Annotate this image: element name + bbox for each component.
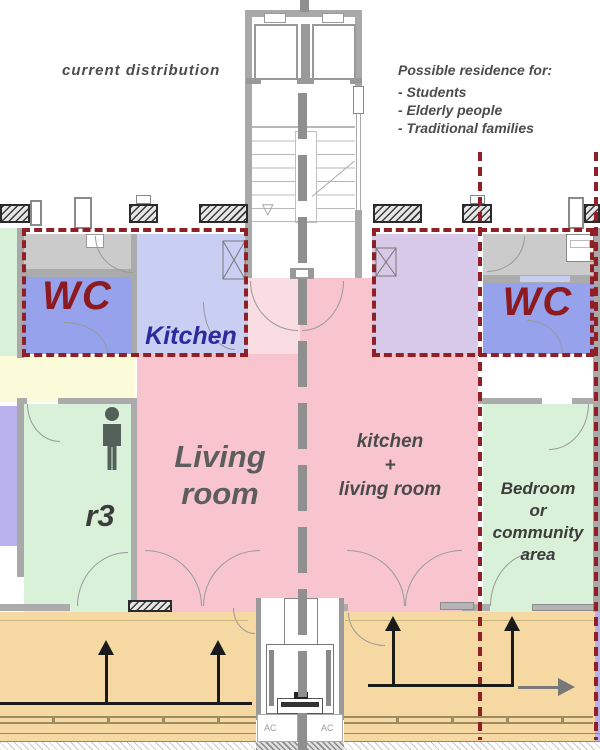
- shaft-door-right: [353, 86, 364, 114]
- room-fill-green-sliver-left: [0, 228, 17, 358]
- shaft-window-right: [356, 114, 361, 210]
- ac-box-left: AC: [257, 714, 298, 742]
- corridor-fill-yellow-left: [0, 356, 135, 402]
- section-line-vertical: [298, 93, 307, 750]
- shaft-wall-right-top: [355, 10, 362, 86]
- flow-arrow-east-stem: [518, 686, 560, 689]
- chimney-left: [74, 197, 92, 229]
- room-fill-periwinkle-sliver-left: [0, 406, 17, 546]
- elevator-rail-left: [269, 650, 274, 706]
- ac-box-right: AC: [302, 714, 343, 742]
- flow-line-right: [368, 684, 514, 687]
- bedroom-top-wall-a: [478, 398, 542, 404]
- corridor-sill-strip-left: [0, 716, 256, 724]
- elevator-sill-3: [350, 78, 362, 84]
- elevator-cab-left: [254, 24, 298, 80]
- radiator-top-2-cap: [136, 195, 151, 204]
- flow-line-left: [0, 702, 252, 705]
- elevator-lower-wall-left: [256, 598, 261, 720]
- flow-arrow-left-1-stem: [105, 653, 108, 704]
- chimney-right: [568, 197, 584, 229]
- section-line-stub: [300, 0, 309, 12]
- radiator-top-2: [129, 204, 158, 223]
- elevator-sill-1: [246, 78, 261, 84]
- radiator-top-1: [0, 204, 30, 223]
- person-icon: [98, 406, 126, 476]
- flow-arrow-left-2-head-icon: [210, 640, 226, 655]
- flow-arrow-left-1-head-icon: [98, 640, 114, 655]
- flow-arrow-right-1-head-icon: [385, 616, 401, 631]
- right-title: Possible residence for:: [398, 62, 552, 78]
- unit-divider-dash-594: [594, 152, 598, 740]
- corridor-inner-line-right: [345, 620, 593, 621]
- elevator-vent-left: [264, 13, 286, 23]
- flow-arrow-left-2-stem: [217, 653, 220, 704]
- radiator-top-5: [462, 204, 492, 223]
- kitchen-label: Kitchen: [137, 322, 245, 351]
- chimney-left-cap: [30, 200, 42, 226]
- elevator-cab-right: [312, 24, 356, 80]
- shaft-wall-right-bottom: [355, 210, 362, 278]
- stairs-down-triangle-icon: ▽: [262, 200, 274, 218]
- radiator-top-4: [373, 204, 422, 223]
- corridor-inner-line-left: [0, 620, 248, 621]
- r3-label: r3: [60, 498, 140, 534]
- residence-option-2: - Elderly people: [398, 102, 502, 118]
- floor-plan: ▽: [0, 0, 600, 750]
- bedroom-label: Bedroom or community area: [486, 478, 590, 566]
- ac-label-left: AC: [264, 723, 277, 733]
- elevator-rail-right: [326, 650, 331, 706]
- wc-right-label: WC: [483, 280, 593, 325]
- flow-arrow-right-2-head-icon: [504, 616, 520, 631]
- elevator-vent-right: [322, 13, 344, 23]
- residence-option-3: - Traditional families: [398, 120, 534, 136]
- kitchen-living-label: kitchen + living room: [305, 430, 475, 502]
- elevator-sill-2: [297, 78, 314, 84]
- residence-option-1: - Students: [398, 84, 466, 100]
- left-title: current distribution: [62, 62, 220, 79]
- living-room-label: Living room: [140, 438, 300, 512]
- r3-top-wall-a: [17, 398, 27, 404]
- window-sill-bottom-right-2: [532, 604, 594, 611]
- ac-label-right: AC: [321, 723, 334, 733]
- wc-left-label: WC: [24, 274, 131, 319]
- flow-arrow-right-1-stem: [392, 629, 395, 686]
- flow-arrow-east-head-icon: [558, 678, 575, 696]
- elevator-lower-wall-right: [339, 598, 344, 720]
- r3-top-wall-b: [58, 398, 137, 404]
- unit-divider-dash-478: [478, 152, 482, 740]
- corridor-sill-strip-right: [344, 716, 593, 724]
- flow-arrow-right-2-stem: [511, 629, 514, 686]
- bottom-wall-seg-1: [0, 604, 70, 611]
- elevator-pillar: [301, 24, 310, 80]
- radiator-top-3: [199, 204, 248, 223]
- left-edge-wall-lower: [17, 402, 24, 577]
